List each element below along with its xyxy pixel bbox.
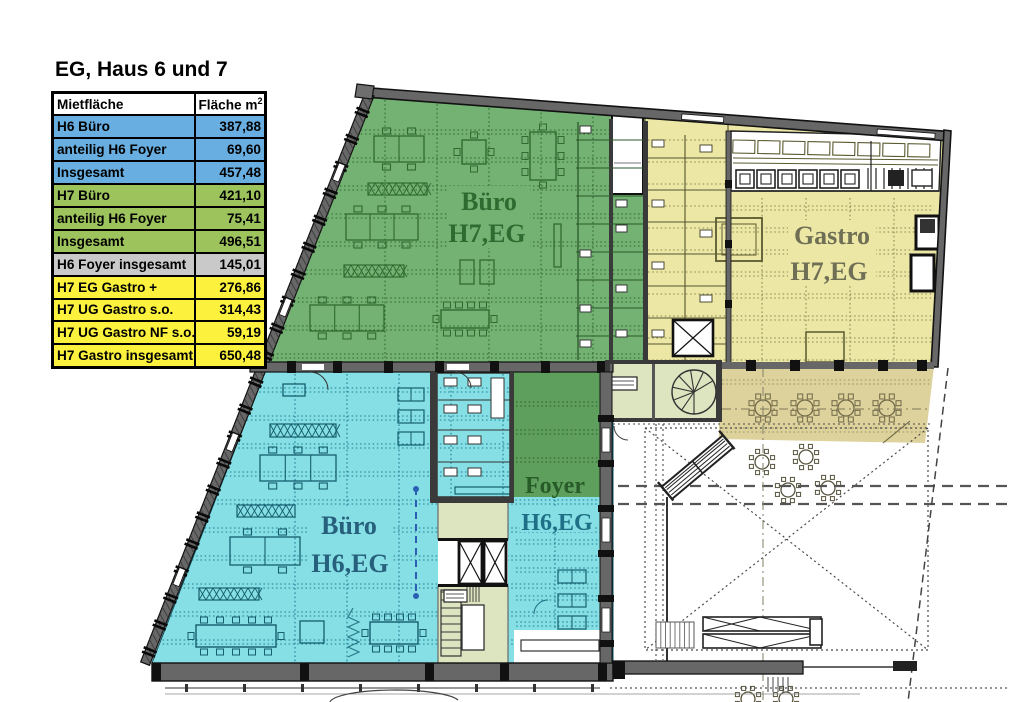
svg-text:H6,EG: H6,EG [311, 549, 388, 578]
svg-text:Foyer: Foyer [525, 473, 585, 499]
svg-text:H7,EG: H7,EG [448, 219, 525, 248]
svg-text:H6,EG: H6,EG [521, 510, 593, 536]
svg-text:Büro: Büro [461, 187, 517, 216]
svg-text:H7,EG: H7,EG [790, 257, 867, 286]
svg-text:Büro: Büro [321, 511, 377, 540]
svg-text:Gastro: Gastro [794, 221, 870, 250]
